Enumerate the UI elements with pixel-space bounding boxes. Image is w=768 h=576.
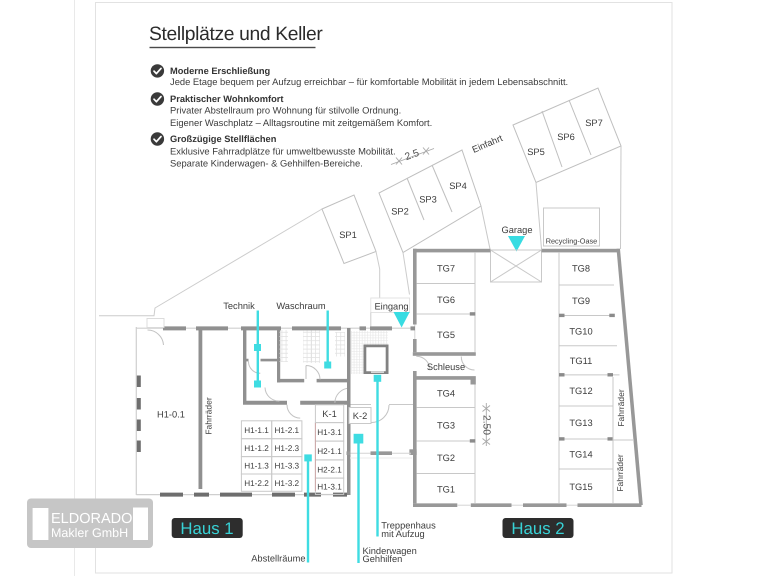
- svg-text:Fahrräder: Fahrräder: [204, 397, 214, 434]
- svg-text:TG13: TG13: [569, 418, 592, 428]
- svg-text:SP7: SP7: [585, 118, 603, 128]
- svg-text:Großzügige Stellflächen: Großzügige Stellflächen: [170, 134, 277, 144]
- svg-text:TG8: TG8: [572, 264, 590, 274]
- svg-text:TG6: TG6: [437, 295, 455, 305]
- svg-text:SP2: SP2: [391, 207, 409, 217]
- svg-text:SP6: SP6: [557, 132, 575, 142]
- svg-text:SP1: SP1: [339, 230, 357, 240]
- svg-text:Eingang: Eingang: [374, 302, 408, 312]
- svg-text:TG1: TG1: [437, 485, 455, 495]
- svg-text:H1-2.2: H1-2.2: [244, 479, 269, 488]
- svg-text:H1-3.1: H1-3.1: [317, 482, 342, 491]
- svg-text:K-2: K-2: [353, 411, 367, 421]
- svg-text:Stellplätze und Keller: Stellplätze und Keller: [149, 24, 323, 45]
- svg-text:Privater Abstellraum pro Wohnu: Privater Abstellraum pro Wohnung für sti…: [170, 104, 401, 115]
- svg-text:TG10: TG10: [569, 327, 592, 337]
- svg-text:Waschraum: Waschraum: [276, 301, 326, 311]
- svg-text:TG4: TG4: [437, 389, 455, 399]
- svg-text:2.50: 2.50: [481, 415, 492, 435]
- svg-text:SP5: SP5: [527, 147, 545, 157]
- svg-text:H1-3.1: H1-3.1: [317, 428, 342, 437]
- svg-text:SP3: SP3: [419, 195, 437, 205]
- svg-text:TG3: TG3: [437, 421, 455, 431]
- svg-text:Recycling-Oase: Recycling-Oase: [546, 237, 598, 246]
- svg-text:H1-3.2: H1-3.2: [275, 479, 300, 488]
- svg-text:H1-2.1: H1-2.1: [275, 426, 300, 435]
- svg-text:TG11: TG11: [570, 356, 593, 366]
- svg-text:ELDORADO: ELDORADO: [51, 511, 132, 527]
- svg-text:H1-1.2: H1-1.2: [244, 444, 269, 453]
- svg-text:TG12: TG12: [569, 386, 592, 396]
- svg-text:Haus 2: Haus 2: [511, 519, 564, 538]
- svg-text:TG14: TG14: [569, 450, 592, 460]
- svg-text:Jede Etage bequem per Aufzug e: Jede Etage bequem per Aufzug erreichbar …: [170, 76, 568, 87]
- svg-text:Fahrräder: Fahrräder: [616, 389, 626, 426]
- svg-text:SP4: SP4: [449, 181, 467, 191]
- svg-text:TG7: TG7: [437, 264, 455, 274]
- svg-text:Fahrräder: Fahrräder: [615, 454, 625, 491]
- svg-text:Moderne Erschließung: Moderne Erschließung: [170, 66, 271, 76]
- svg-text:Exklusive Fahrradplätze für um: Exklusive Fahrradplätze für umweltbewuss…: [170, 146, 396, 157]
- svg-text:TG2: TG2: [437, 453, 455, 463]
- svg-text:Separate Kinderwagen- & Gehhil: Separate Kinderwagen- & Gehhilfen-Bereic…: [170, 157, 363, 168]
- svg-text:Praktischer Wohnkomfort: Praktischer Wohnkomfort: [170, 94, 283, 104]
- svg-text:H1-1.3: H1-1.3: [244, 462, 269, 471]
- svg-text:Haus 1: Haus 1: [180, 519, 233, 538]
- svg-text:H2-1.1: H2-1.1: [317, 447, 342, 456]
- svg-text:Garage: Garage: [501, 225, 532, 235]
- svg-text:H2-2.1: H2-2.1: [317, 465, 342, 474]
- svg-text:Gehhilfen: Gehhilfen: [363, 554, 403, 564]
- svg-text:TG5: TG5: [437, 330, 455, 340]
- svg-text:H1-2.3: H1-2.3: [275, 444, 300, 453]
- svg-text:H1-1.1: H1-1.1: [244, 426, 269, 435]
- svg-text:TG15: TG15: [569, 482, 592, 492]
- svg-text:Eigener Waschplatz – Alltagsro: Eigener Waschplatz – Alltagsroutine mit …: [170, 117, 432, 128]
- svg-text:K-1: K-1: [322, 409, 336, 419]
- svg-text:H1-3.3: H1-3.3: [275, 462, 300, 471]
- svg-text:H1-0.1: H1-0.1: [157, 410, 185, 420]
- svg-text:mit Aufzug: mit Aufzug: [381, 529, 424, 539]
- svg-text:Abstellräume: Abstellräume: [251, 554, 305, 564]
- svg-text:TG9: TG9: [572, 296, 590, 306]
- svg-text:Technik: Technik: [223, 301, 255, 311]
- svg-text:Makler GmbH: Makler GmbH: [51, 526, 128, 540]
- svg-text:Schleuse: Schleuse: [427, 362, 465, 372]
